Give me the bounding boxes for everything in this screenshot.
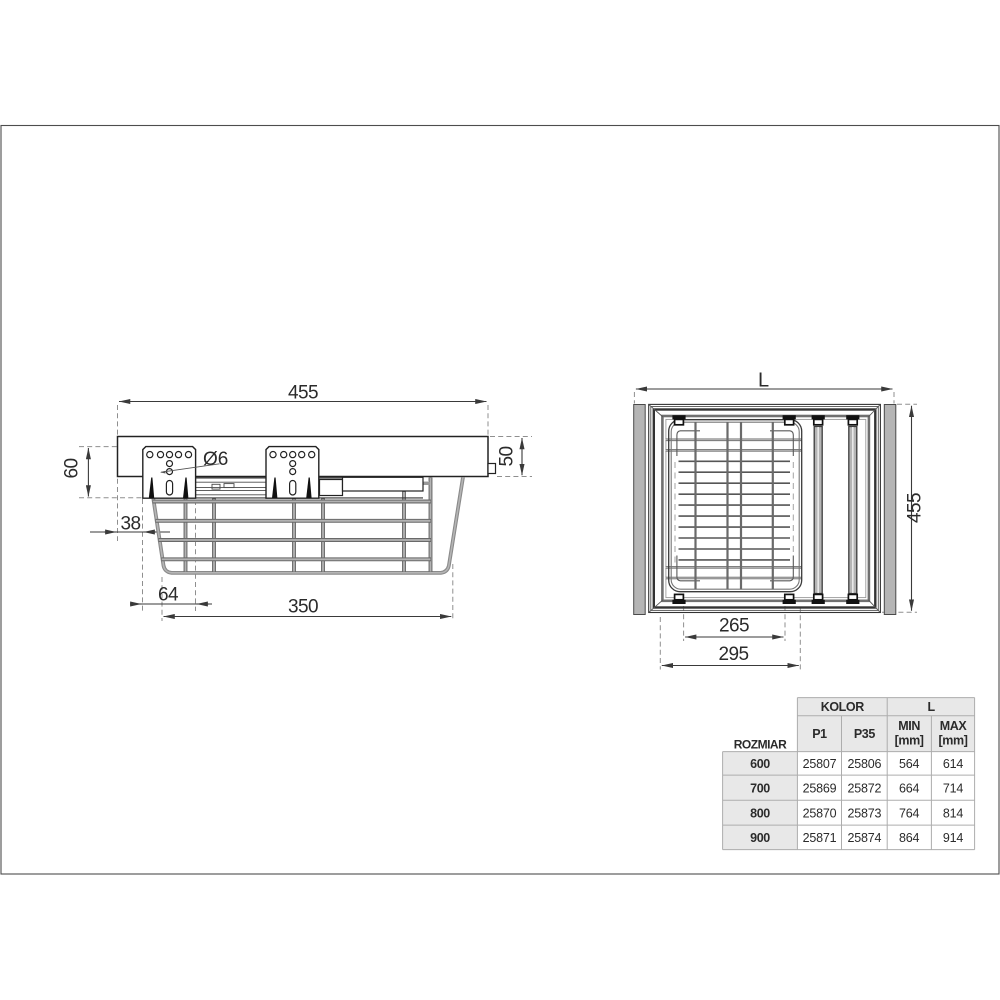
svg-text:25869: 25869 xyxy=(803,782,837,796)
svg-text:295: 295 xyxy=(719,644,749,665)
svg-text:764: 764 xyxy=(899,806,920,820)
svg-text:P35: P35 xyxy=(854,727,875,741)
svg-text:[mm]: [mm] xyxy=(895,734,924,748)
svg-text:864: 864 xyxy=(899,831,920,845)
svg-text:38: 38 xyxy=(121,514,141,535)
svg-text:455: 455 xyxy=(288,383,318,404)
svg-text:25806: 25806 xyxy=(848,757,882,771)
svg-text:900: 900 xyxy=(750,831,770,845)
svg-text:Ø6: Ø6 xyxy=(203,449,228,470)
svg-text:25874: 25874 xyxy=(848,831,882,845)
svg-text:265: 265 xyxy=(719,616,749,637)
svg-text:914: 914 xyxy=(943,831,964,845)
svg-text:25807: 25807 xyxy=(803,757,837,771)
svg-text:25873: 25873 xyxy=(848,806,882,820)
svg-text:ROZMIAR: ROZMIAR xyxy=(734,738,787,752)
svg-text:50: 50 xyxy=(497,447,518,467)
svg-text:P1: P1 xyxy=(812,727,827,741)
svg-text:350: 350 xyxy=(288,597,318,618)
svg-text:KOLOR: KOLOR xyxy=(821,700,865,714)
svg-text:L: L xyxy=(758,370,769,392)
svg-text:814: 814 xyxy=(943,806,964,820)
svg-text:600: 600 xyxy=(750,757,770,771)
svg-text:25870: 25870 xyxy=(803,806,837,820)
svg-text:564: 564 xyxy=(899,757,920,771)
svg-text:800: 800 xyxy=(750,806,770,820)
svg-text:L: L xyxy=(927,700,935,714)
svg-text:64: 64 xyxy=(158,585,179,606)
svg-text:[mm]: [mm] xyxy=(939,734,968,748)
svg-text:714: 714 xyxy=(943,782,964,796)
svg-text:MAX: MAX xyxy=(940,719,968,733)
svg-text:455: 455 xyxy=(905,493,926,523)
svg-text:25872: 25872 xyxy=(848,782,882,796)
svg-text:25871: 25871 xyxy=(803,831,837,845)
svg-text:60: 60 xyxy=(62,459,83,479)
svg-text:614: 614 xyxy=(943,757,964,771)
svg-text:700: 700 xyxy=(750,782,770,796)
svg-text:664: 664 xyxy=(899,782,920,796)
svg-text:MIN: MIN xyxy=(898,719,920,733)
